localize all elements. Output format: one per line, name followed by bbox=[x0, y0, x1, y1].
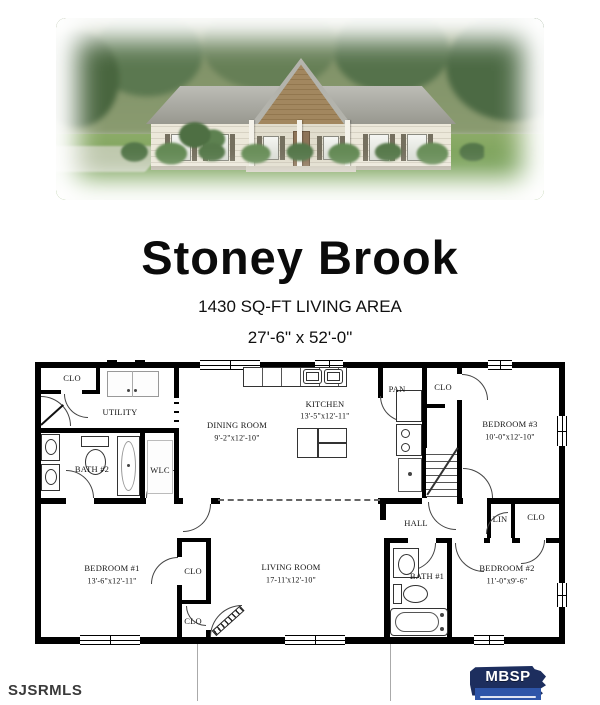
toilet bbox=[403, 585, 428, 603]
door-arc-closet-upper bbox=[151, 557, 178, 584]
wall bbox=[177, 600, 211, 604]
door-arc-bath2 bbox=[66, 470, 94, 498]
wall bbox=[177, 542, 182, 557]
door-arc-closet-bedroom2 bbox=[521, 540, 545, 564]
washer-dryer-divider bbox=[132, 371, 133, 397]
room-label-clo-utility: CLO bbox=[63, 373, 81, 383]
wall bbox=[380, 498, 386, 520]
room-label-bath1: BATH #1 bbox=[410, 571, 444, 581]
wall bbox=[177, 585, 182, 637]
room-dims-bedroom2: 11'-0"x9'-6" bbox=[487, 577, 528, 586]
room-dims-dining: 9'-2"x12'-10" bbox=[214, 434, 259, 443]
wall bbox=[457, 498, 463, 504]
stove bbox=[396, 424, 422, 456]
room-dims-bedroom3: 10'-0"x12'-10" bbox=[485, 433, 535, 442]
living-area-text: 1430 SQ-FT LIVING AREA bbox=[0, 297, 600, 317]
wall bbox=[174, 498, 183, 504]
island-divider bbox=[317, 442, 347, 444]
bifold-door bbox=[174, 411, 179, 413]
room-label-kitchen: KITCHEN bbox=[306, 399, 345, 409]
stove-burner bbox=[401, 443, 410, 452]
mbsp-logo-band bbox=[475, 688, 541, 700]
wall bbox=[140, 433, 145, 498]
kitchen-sink-basin bbox=[324, 369, 343, 384]
house-photo bbox=[56, 18, 544, 200]
stove-burner bbox=[401, 429, 410, 438]
window-symbol bbox=[80, 635, 140, 645]
listing-sheet: Stoney Brook 1430 SQ-FT LIVING AREA 27'-… bbox=[0, 0, 600, 705]
door-arc-bedroom1 bbox=[183, 504, 211, 532]
open-plan-dashed-line bbox=[218, 499, 380, 501]
room-label-dining: DINING ROOM bbox=[207, 420, 267, 430]
sink bbox=[45, 469, 57, 485]
room-dims-living: 17-11'x12'-10" bbox=[266, 576, 316, 585]
room-label-wlc: WLC bbox=[150, 465, 169, 475]
wall bbox=[546, 538, 559, 543]
room-label-clo-linen: CLO bbox=[527, 512, 545, 522]
wall bbox=[94, 498, 146, 504]
room-label-bath2: BATH #2 bbox=[75, 464, 109, 474]
wall bbox=[487, 498, 559, 504]
mbsp-logo-tagline-line bbox=[480, 696, 536, 698]
room-label-bedroom2: BEDROOM #2 bbox=[479, 563, 534, 573]
faucet bbox=[440, 613, 444, 617]
wall bbox=[427, 404, 445, 408]
room-label-clo-bed1-upper: CLO bbox=[184, 566, 202, 576]
kitchen-sink-basin bbox=[303, 369, 322, 384]
room-label-pantry: PAN bbox=[389, 384, 406, 394]
room-label-utility: UTILITY bbox=[103, 407, 138, 417]
leader-line bbox=[197, 644, 198, 701]
refrigerator bbox=[396, 390, 422, 422]
wall bbox=[484, 538, 490, 543]
bifold-door bbox=[174, 420, 179, 422]
window-symbol bbox=[557, 583, 567, 607]
window-symbol bbox=[557, 416, 567, 446]
window-symbol bbox=[474, 635, 504, 645]
room-dims-bedroom1: 13'-6"x12'-11" bbox=[87, 577, 136, 586]
mbsp-logo-tagline-line bbox=[486, 700, 530, 702]
mbsp-logo: MBSP bbox=[470, 666, 546, 705]
mbsp-logo-text: MBSP bbox=[470, 668, 546, 685]
room-dims-kitchen: 13'-5"x12'-11" bbox=[300, 412, 349, 421]
wall bbox=[41, 390, 61, 394]
room-label-bedroom1: BEDROOM #1 bbox=[84, 563, 139, 573]
door-arc-hall bbox=[428, 502, 456, 530]
faucet bbox=[440, 627, 444, 631]
washer-dryer bbox=[107, 371, 159, 397]
sink bbox=[45, 439, 57, 455]
window-symbol bbox=[488, 360, 512, 370]
overall-dimensions-text: 27'-6" x 52'-0" bbox=[0, 328, 600, 348]
foundation-shrubs bbox=[116, 136, 484, 168]
appliance-knob bbox=[127, 389, 130, 392]
bifold-door bbox=[174, 402, 179, 404]
wall-vent bbox=[107, 360, 117, 368]
wall bbox=[174, 368, 179, 398]
wall bbox=[457, 400, 462, 498]
door-arc-bedroom3 bbox=[463, 468, 493, 498]
room-label-clo-bed1-lower: CLO bbox=[184, 616, 202, 626]
wall bbox=[174, 428, 179, 504]
window-symbol bbox=[285, 635, 345, 645]
cabinet-knob bbox=[408, 472, 412, 476]
toilet-tank bbox=[81, 436, 109, 447]
wall bbox=[206, 542, 211, 602]
toilet-tank bbox=[393, 584, 402, 604]
leader-line bbox=[390, 644, 391, 701]
bathtub-basin bbox=[395, 612, 439, 632]
wall bbox=[96, 368, 100, 394]
shower-drain bbox=[127, 464, 130, 467]
wall-vent bbox=[135, 360, 145, 368]
wall bbox=[378, 368, 383, 398]
appliance-knob bbox=[134, 389, 137, 392]
page-title: Stoney Brook bbox=[0, 230, 600, 285]
wall bbox=[41, 428, 174, 433]
wall bbox=[512, 538, 520, 543]
mls-watermark: SJSRMLS bbox=[8, 682, 82, 699]
room-label-living: LIVING ROOM bbox=[261, 562, 320, 572]
door-arc-bedroom3-closet bbox=[462, 374, 488, 400]
wall bbox=[511, 504, 515, 538]
room-label-clo-bed3: CLO bbox=[434, 382, 452, 392]
room-label-bedroom3: BEDROOM #3 bbox=[482, 419, 537, 429]
wall bbox=[41, 498, 66, 504]
room-label-linen: LIN bbox=[493, 514, 508, 524]
room-label-hall: HALL bbox=[404, 518, 427, 528]
